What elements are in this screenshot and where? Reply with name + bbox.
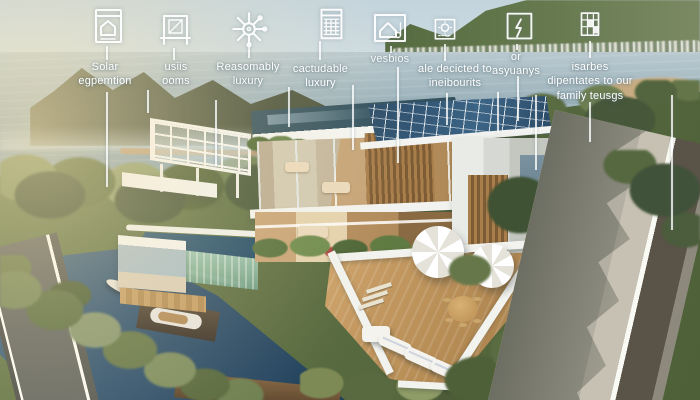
furniture [322, 182, 350, 193]
leader-line [535, 95, 537, 170]
leader-line [352, 85, 354, 150]
leader-line [444, 44, 446, 61]
house-photo-icon [368, 8, 412, 48]
leader-line [446, 93, 448, 125]
leader-line [106, 92, 108, 187]
leader-line [288, 87, 290, 127]
leader-line [589, 41, 591, 58]
blueprint-plan-icon [88, 6, 128, 46]
callout-label-luxury-2: cactudable luxury [278, 62, 363, 91]
window-frame-icon [155, 10, 195, 50]
cabana [118, 235, 186, 293]
leader-line [497, 92, 499, 133]
sun-wheel-icon [226, 8, 272, 50]
leader-line [671, 95, 673, 230]
sun-panel-icon [428, 14, 462, 46]
leader-line [147, 90, 149, 113]
leader-line [215, 100, 217, 166]
callout-label-family: isarbes dipentates to our family teusgs [520, 60, 660, 103]
leader-line [106, 46, 108, 60]
annotated-villa-render: Solar egpemtion usiis ooms Reasomably lu… [0, 0, 700, 400]
leader-line [397, 67, 399, 163]
furniture [285, 162, 309, 172]
leader-line [589, 102, 591, 142]
building-facade-icon [312, 5, 350, 43]
leader-line [517, 76, 519, 121]
leader-line [319, 41, 321, 60]
roadside-trees [600, 150, 700, 260]
lightning-square-icon [500, 8, 538, 46]
pergola-post [236, 172, 239, 198]
grid-plan-icon [572, 8, 608, 42]
